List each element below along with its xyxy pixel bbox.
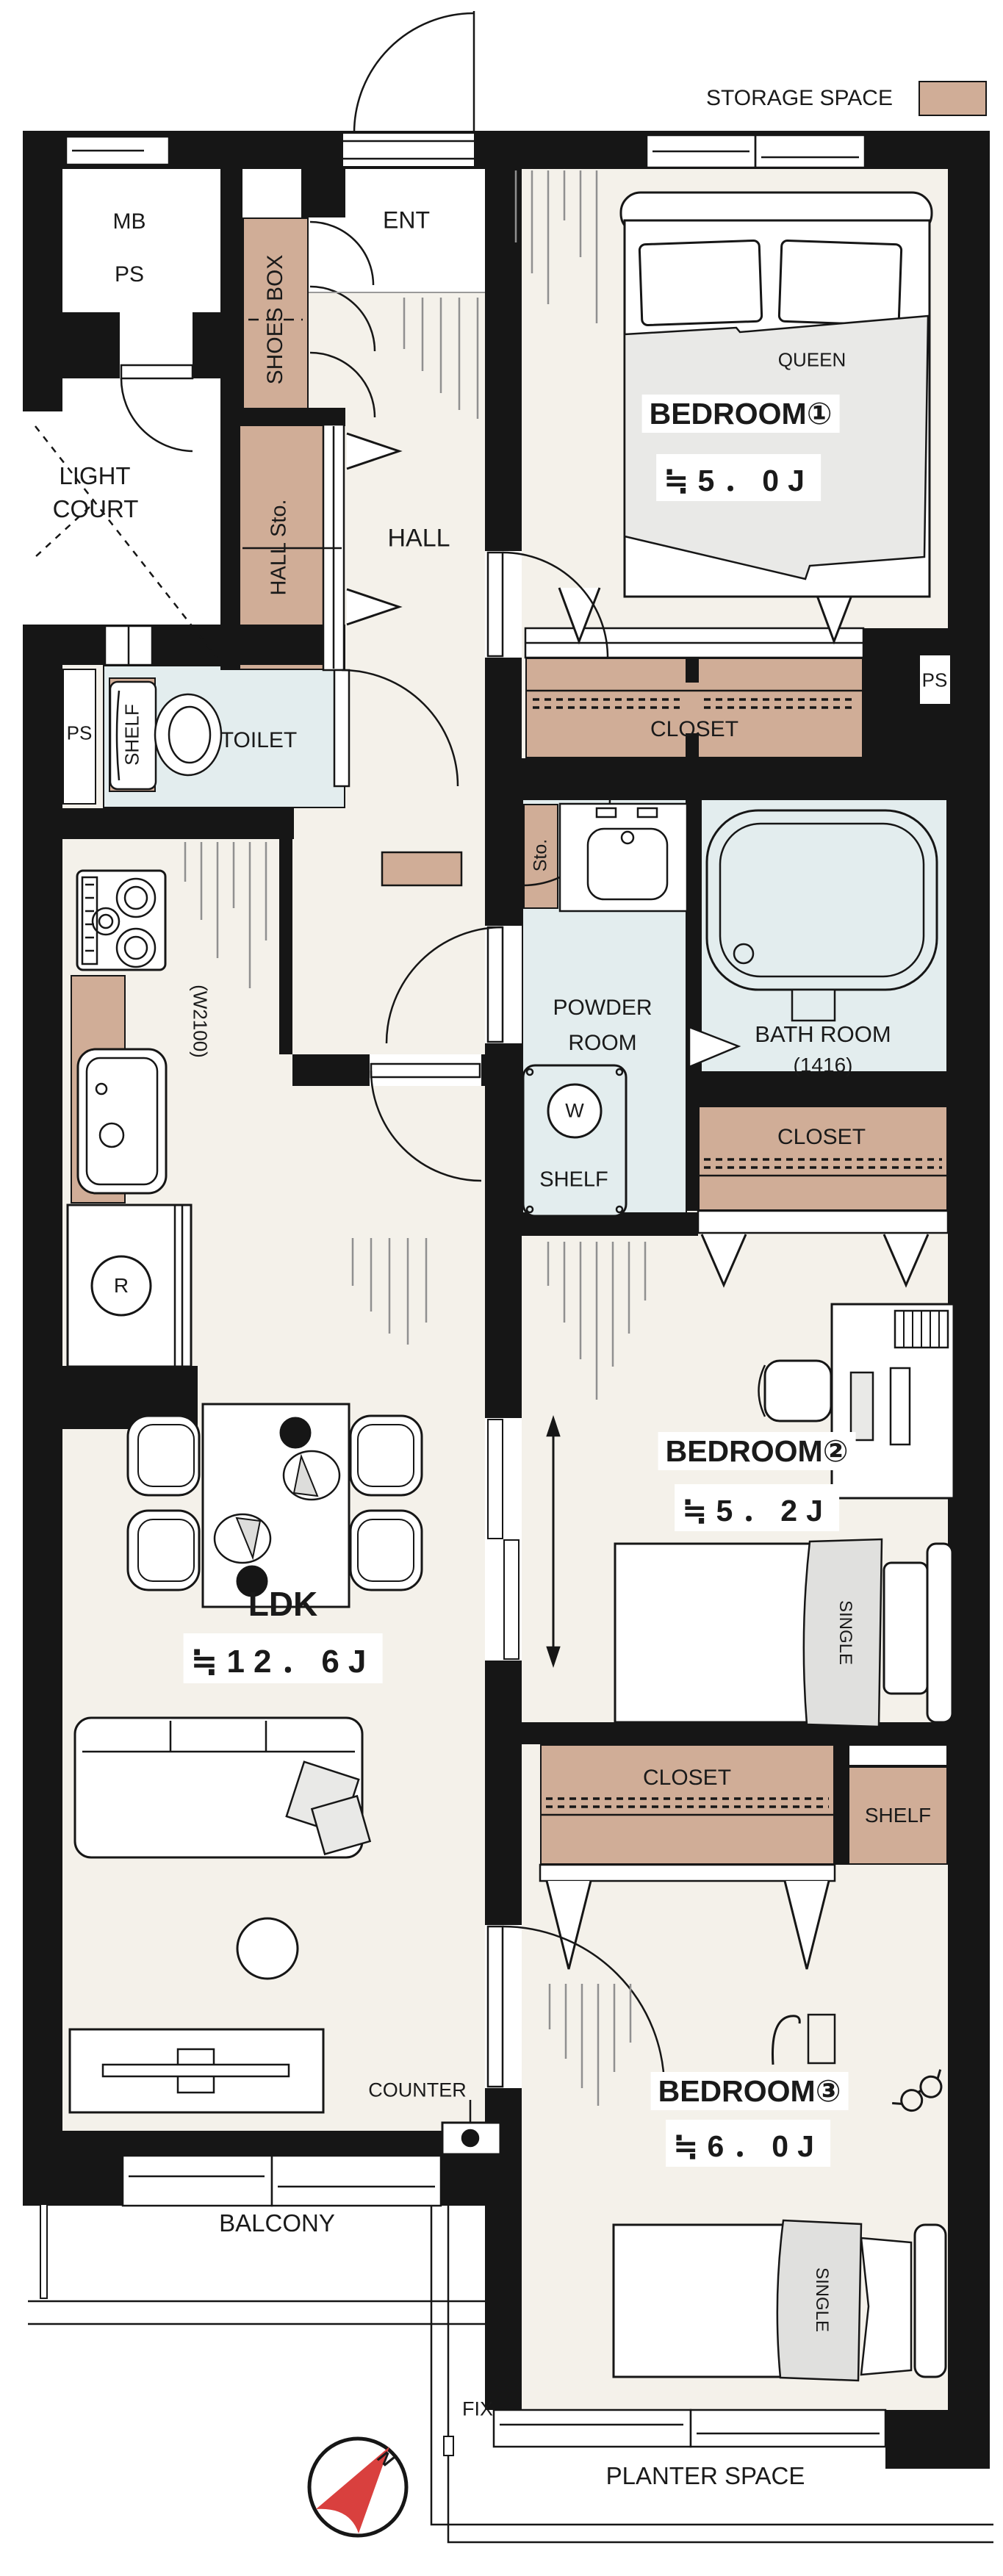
washing-machine (523, 1065, 626, 1216)
single2-label: SINGLE (835, 1600, 855, 1665)
single3-label: SINGLE (811, 2267, 832, 2332)
shelf3-label: SHELF (865, 1804, 931, 1827)
powder-label-1: POWDER (553, 996, 653, 1021)
light-court-dashes (35, 426, 217, 658)
ent-label: ENT (383, 207, 430, 234)
stove (77, 871, 165, 970)
hall-sto-label: HALL Sto. (267, 499, 292, 595)
counter-box (442, 2100, 500, 2154)
closet2-lines (698, 1159, 948, 1285)
corridor-shelf (382, 852, 461, 885)
light-court-window (105, 626, 152, 665)
linework (0, 0, 1003, 2576)
hall-storage-doors (242, 425, 399, 670)
balcony-label: BALCONY (219, 2209, 335, 2237)
sofa (75, 1718, 370, 1857)
planter-label: PLANTER SPACE (606, 2462, 805, 2490)
mbps-door (121, 365, 193, 451)
entrance-door (354, 11, 474, 133)
ps-left-label: PS (67, 722, 93, 745)
bedroom1-name: BEDROOM① (642, 395, 840, 433)
bedroom3-door (488, 1926, 664, 2088)
powder-label-2: ROOM (568, 1031, 636, 1056)
light-court-label-2: COURT (53, 495, 139, 523)
bathtub (707, 810, 937, 1021)
closet2-label: CLOSET (777, 1125, 866, 1150)
window-top-left-lines (66, 137, 169, 165)
bath-size: (1416) (794, 1054, 853, 1077)
ldk-size: ≒12．6J (184, 1633, 383, 1683)
bedroom2-name: BEDROOM② (658, 1432, 856, 1470)
bath-name: BATH ROOM (755, 1021, 891, 1048)
hanger-rack (773, 2015, 835, 2065)
dining-table (203, 1404, 349, 1607)
hall-label: HALL (387, 525, 450, 553)
bedroom3-name: BEDROOM③ (651, 2072, 849, 2110)
ps-label: PS (115, 262, 144, 287)
single-bed-2 (615, 1539, 952, 1727)
bedroom2-size: ≒5．2J (675, 1484, 839, 1531)
closet1-label: CLOSET (650, 717, 738, 742)
refrigerator (68, 1205, 191, 1367)
vanity (560, 804, 687, 911)
sto-label: Sto. (531, 839, 552, 871)
toilet-door (334, 670, 458, 786)
corridor-door-a (387, 927, 503, 1043)
kitchen-width-label: (W2100) (189, 985, 212, 1058)
side-table (237, 1918, 298, 1979)
light-court-label-1: LIGHT (59, 462, 130, 490)
bedroom1-size: ≒5．0J (656, 454, 821, 501)
bedroom2-sliding-door (488, 1418, 559, 1665)
queen-label: QUEEN (778, 349, 846, 372)
closet3-label: CLOSET (643, 1766, 731, 1791)
tv-board (70, 2029, 323, 2112)
counter-label: COUNTER (368, 2079, 467, 2102)
bath-door-mark (689, 1027, 738, 1067)
toilet-shelf-label: SHELF (121, 704, 144, 766)
single-bed-3 (614, 2220, 946, 2381)
corridor-door-b (371, 1064, 481, 1181)
fix-label: FIX (462, 2398, 493, 2421)
glasses-icon (891, 2068, 952, 2119)
washer-label: W (565, 1100, 583, 1123)
floor-plan: STORAGE SPACE MB PS ENT SHOES BOX LIGHT … (0, 0, 1003, 2576)
bedroom3-window (494, 2410, 885, 2447)
toilet-label: TOILET (220, 728, 297, 753)
desk-chair (759, 1361, 832, 1421)
kitchen-sink (78, 1049, 166, 1193)
powder-shelf-label: SHELF (539, 1168, 608, 1192)
window-bedroom1-top-lines (647, 135, 865, 168)
legend-label: STORAGE SPACE (706, 86, 893, 111)
closet3-lines (540, 1799, 835, 1969)
fridge-label: R (114, 1274, 129, 1298)
closet1-lines (525, 588, 863, 708)
ldk-name: LDK (248, 1584, 318, 1624)
mb-label: MB (113, 209, 146, 234)
shoes-box-label: SHOES BOX (263, 255, 288, 385)
balcony-window (123, 2156, 441, 2206)
ent-threshold (343, 141, 474, 159)
bedroom3-size: ≒6．0J (666, 2120, 830, 2167)
ps-right-label: PS (922, 669, 948, 692)
